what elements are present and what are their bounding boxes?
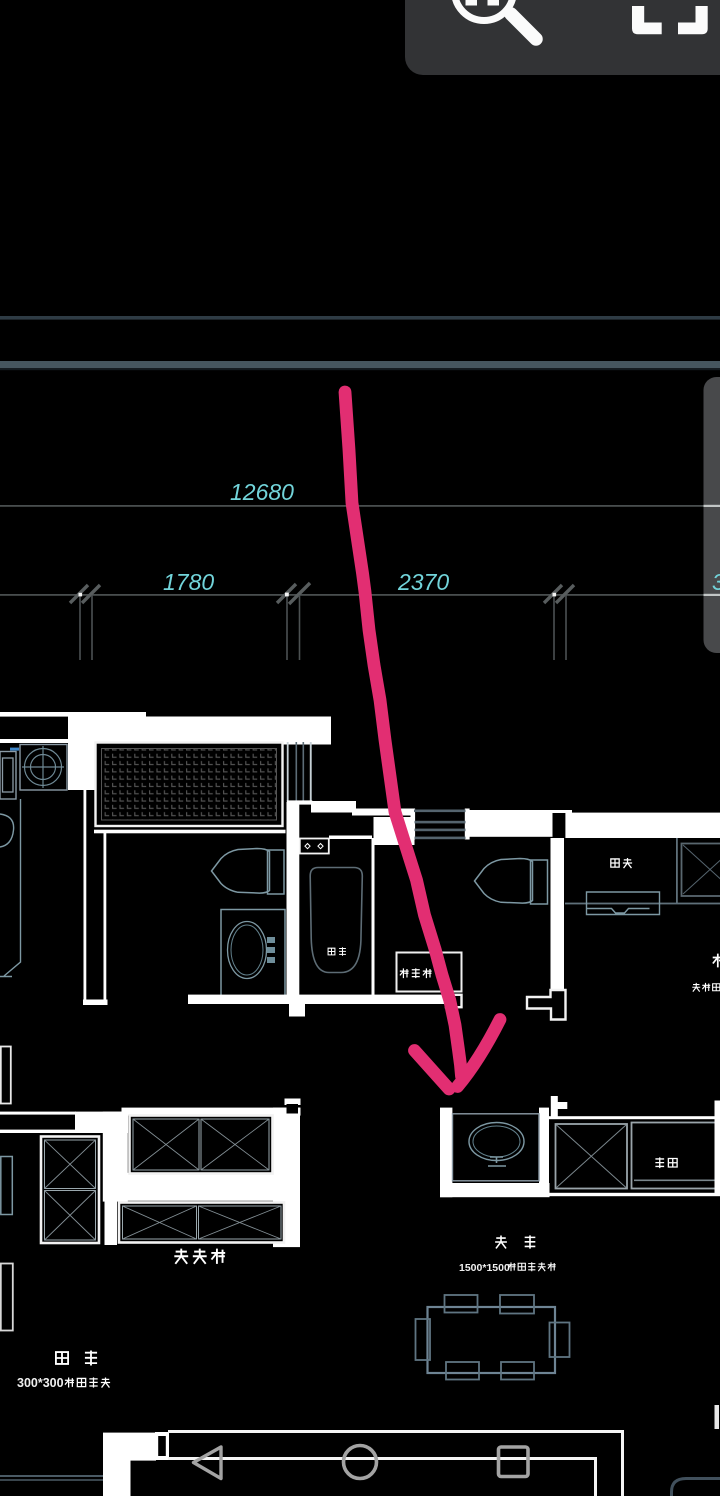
svg-text:12680: 12680	[230, 479, 294, 505]
svg-text:31: 31	[712, 569, 720, 595]
svg-text:300*300: 300*300	[17, 1376, 64, 1390]
svg-text:1780: 1780	[163, 569, 214, 595]
svg-text:1500*1500: 1500*1500	[459, 1262, 510, 1274]
svg-text:2370: 2370	[397, 569, 449, 595]
